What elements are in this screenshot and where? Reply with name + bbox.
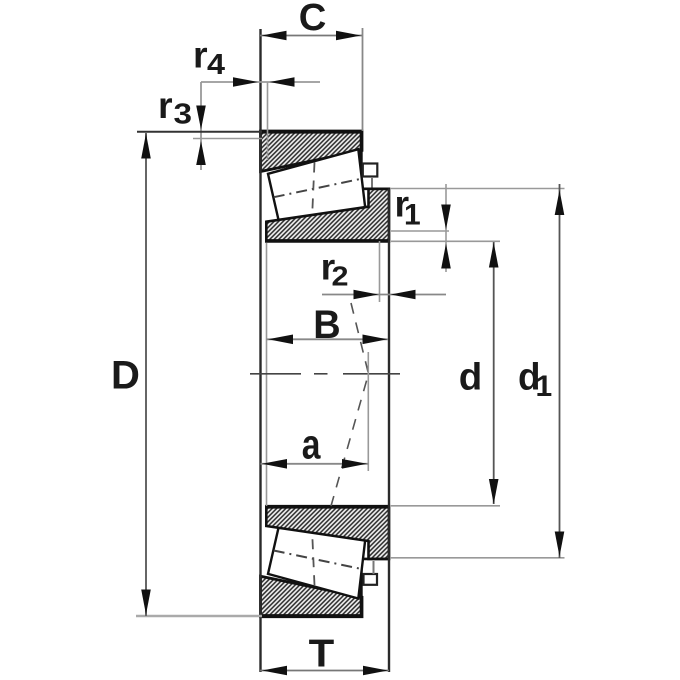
svg-text:T: T	[309, 633, 335, 676]
svg-text:a: a	[302, 421, 321, 468]
svg-text:2: 2	[332, 261, 349, 292]
svg-text:D: D	[111, 354, 140, 398]
svg-text:4: 4	[207, 49, 225, 81]
svg-text:B: B	[313, 303, 340, 347]
svg-text:1: 1	[536, 370, 553, 403]
svg-text:1: 1	[404, 199, 421, 232]
svg-text:d: d	[459, 357, 483, 399]
svg-text:r: r	[193, 34, 208, 76]
svg-text:3: 3	[174, 99, 193, 131]
svg-text:C: C	[299, 0, 327, 39]
svg-text:r: r	[158, 84, 173, 126]
